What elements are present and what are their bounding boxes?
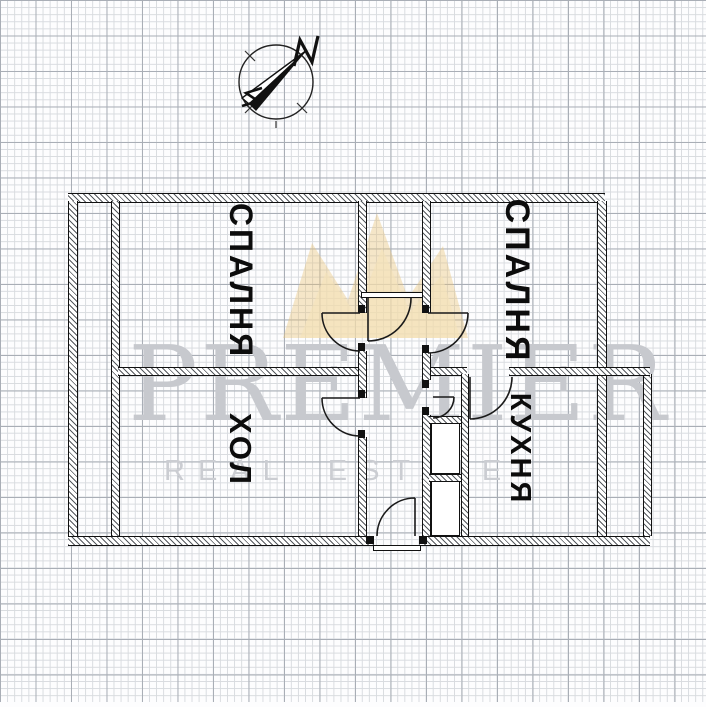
door-frame bbox=[422, 305, 429, 313]
wall-bath-kitchen bbox=[461, 374, 469, 536]
door-frame bbox=[366, 536, 374, 544]
entrance-threshold bbox=[373, 545, 421, 551]
wall-bedroom-hall-divider bbox=[118, 367, 358, 376]
apartment-floor-plan: СПАЛНЯ СПАЛНЯ ХОЛ КУХНЯ bbox=[0, 0, 706, 702]
wc-room-outline bbox=[431, 423, 460, 474]
door-frame bbox=[422, 345, 429, 353]
wall-outer-left bbox=[68, 201, 78, 543]
door-frame bbox=[422, 407, 429, 415]
bathroom-outline bbox=[431, 481, 460, 536]
floor-plan-page: { "compass": { "label": "N" }, "rooms": … bbox=[0, 0, 706, 702]
door-frame bbox=[358, 305, 365, 313]
wall-corridor-left-c bbox=[358, 437, 367, 536]
wall-corridor-right-a bbox=[422, 201, 431, 313]
door-frame bbox=[358, 343, 365, 351]
wall-corridor-right-b bbox=[422, 353, 431, 380]
wall-right-balcony bbox=[643, 374, 652, 536]
room-label-bedroom-left: СПАЛНЯ bbox=[221, 201, 261, 361]
wall-outer-bottom-right bbox=[419, 536, 650, 546]
room-label-hall: ХОЛ bbox=[220, 395, 260, 505]
wall-bedroom-kitchen-divider-right bbox=[509, 367, 650, 376]
door-frame bbox=[419, 536, 427, 544]
door-frame bbox=[358, 390, 365, 398]
wall-outer-bottom-left bbox=[68, 536, 374, 546]
closet-bottom-line bbox=[361, 292, 423, 298]
room-label-kitchen: КУХНЯ bbox=[500, 384, 540, 514]
room-label-bedroom-right: СПАЛНЯ bbox=[497, 196, 537, 366]
door-frame bbox=[422, 380, 429, 388]
door-frame bbox=[358, 430, 365, 438]
